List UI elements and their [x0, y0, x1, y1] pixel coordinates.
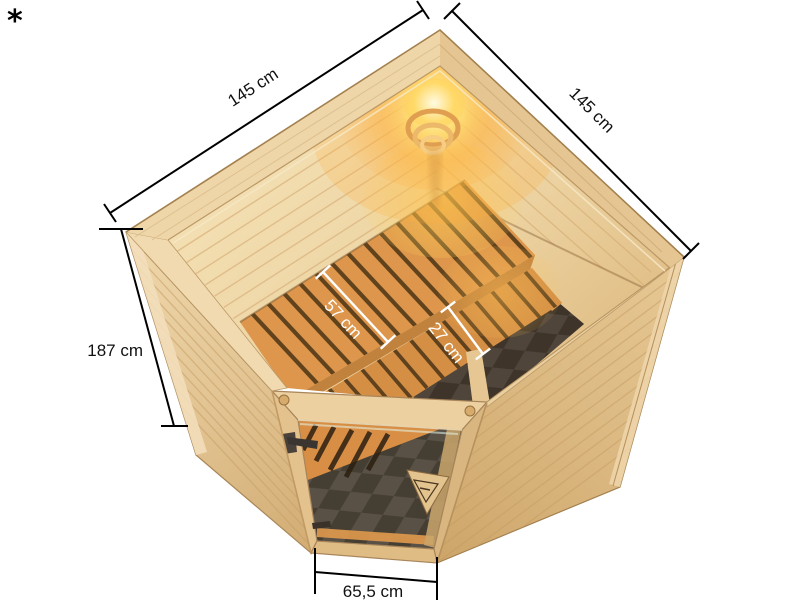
- dim-height-label: 187 cm: [87, 341, 143, 360]
- frame-corner-knot-right: [465, 406, 475, 416]
- sauna-render: 145 cm 145 cm 187 cm 65,5 cm 57 cm: [0, 0, 800, 600]
- door-glass: [298, 420, 462, 549]
- dim-width-left-label: 145 cm: [224, 64, 281, 110]
- dim-width-right-label: 145 cm: [565, 84, 618, 137]
- dim-door-width-label: 65,5 cm: [343, 582, 403, 600]
- product-image: *: [0, 0, 800, 600]
- frame-corner-knot-left: [279, 395, 289, 405]
- bench-light-pool-2: [438, 246, 562, 338]
